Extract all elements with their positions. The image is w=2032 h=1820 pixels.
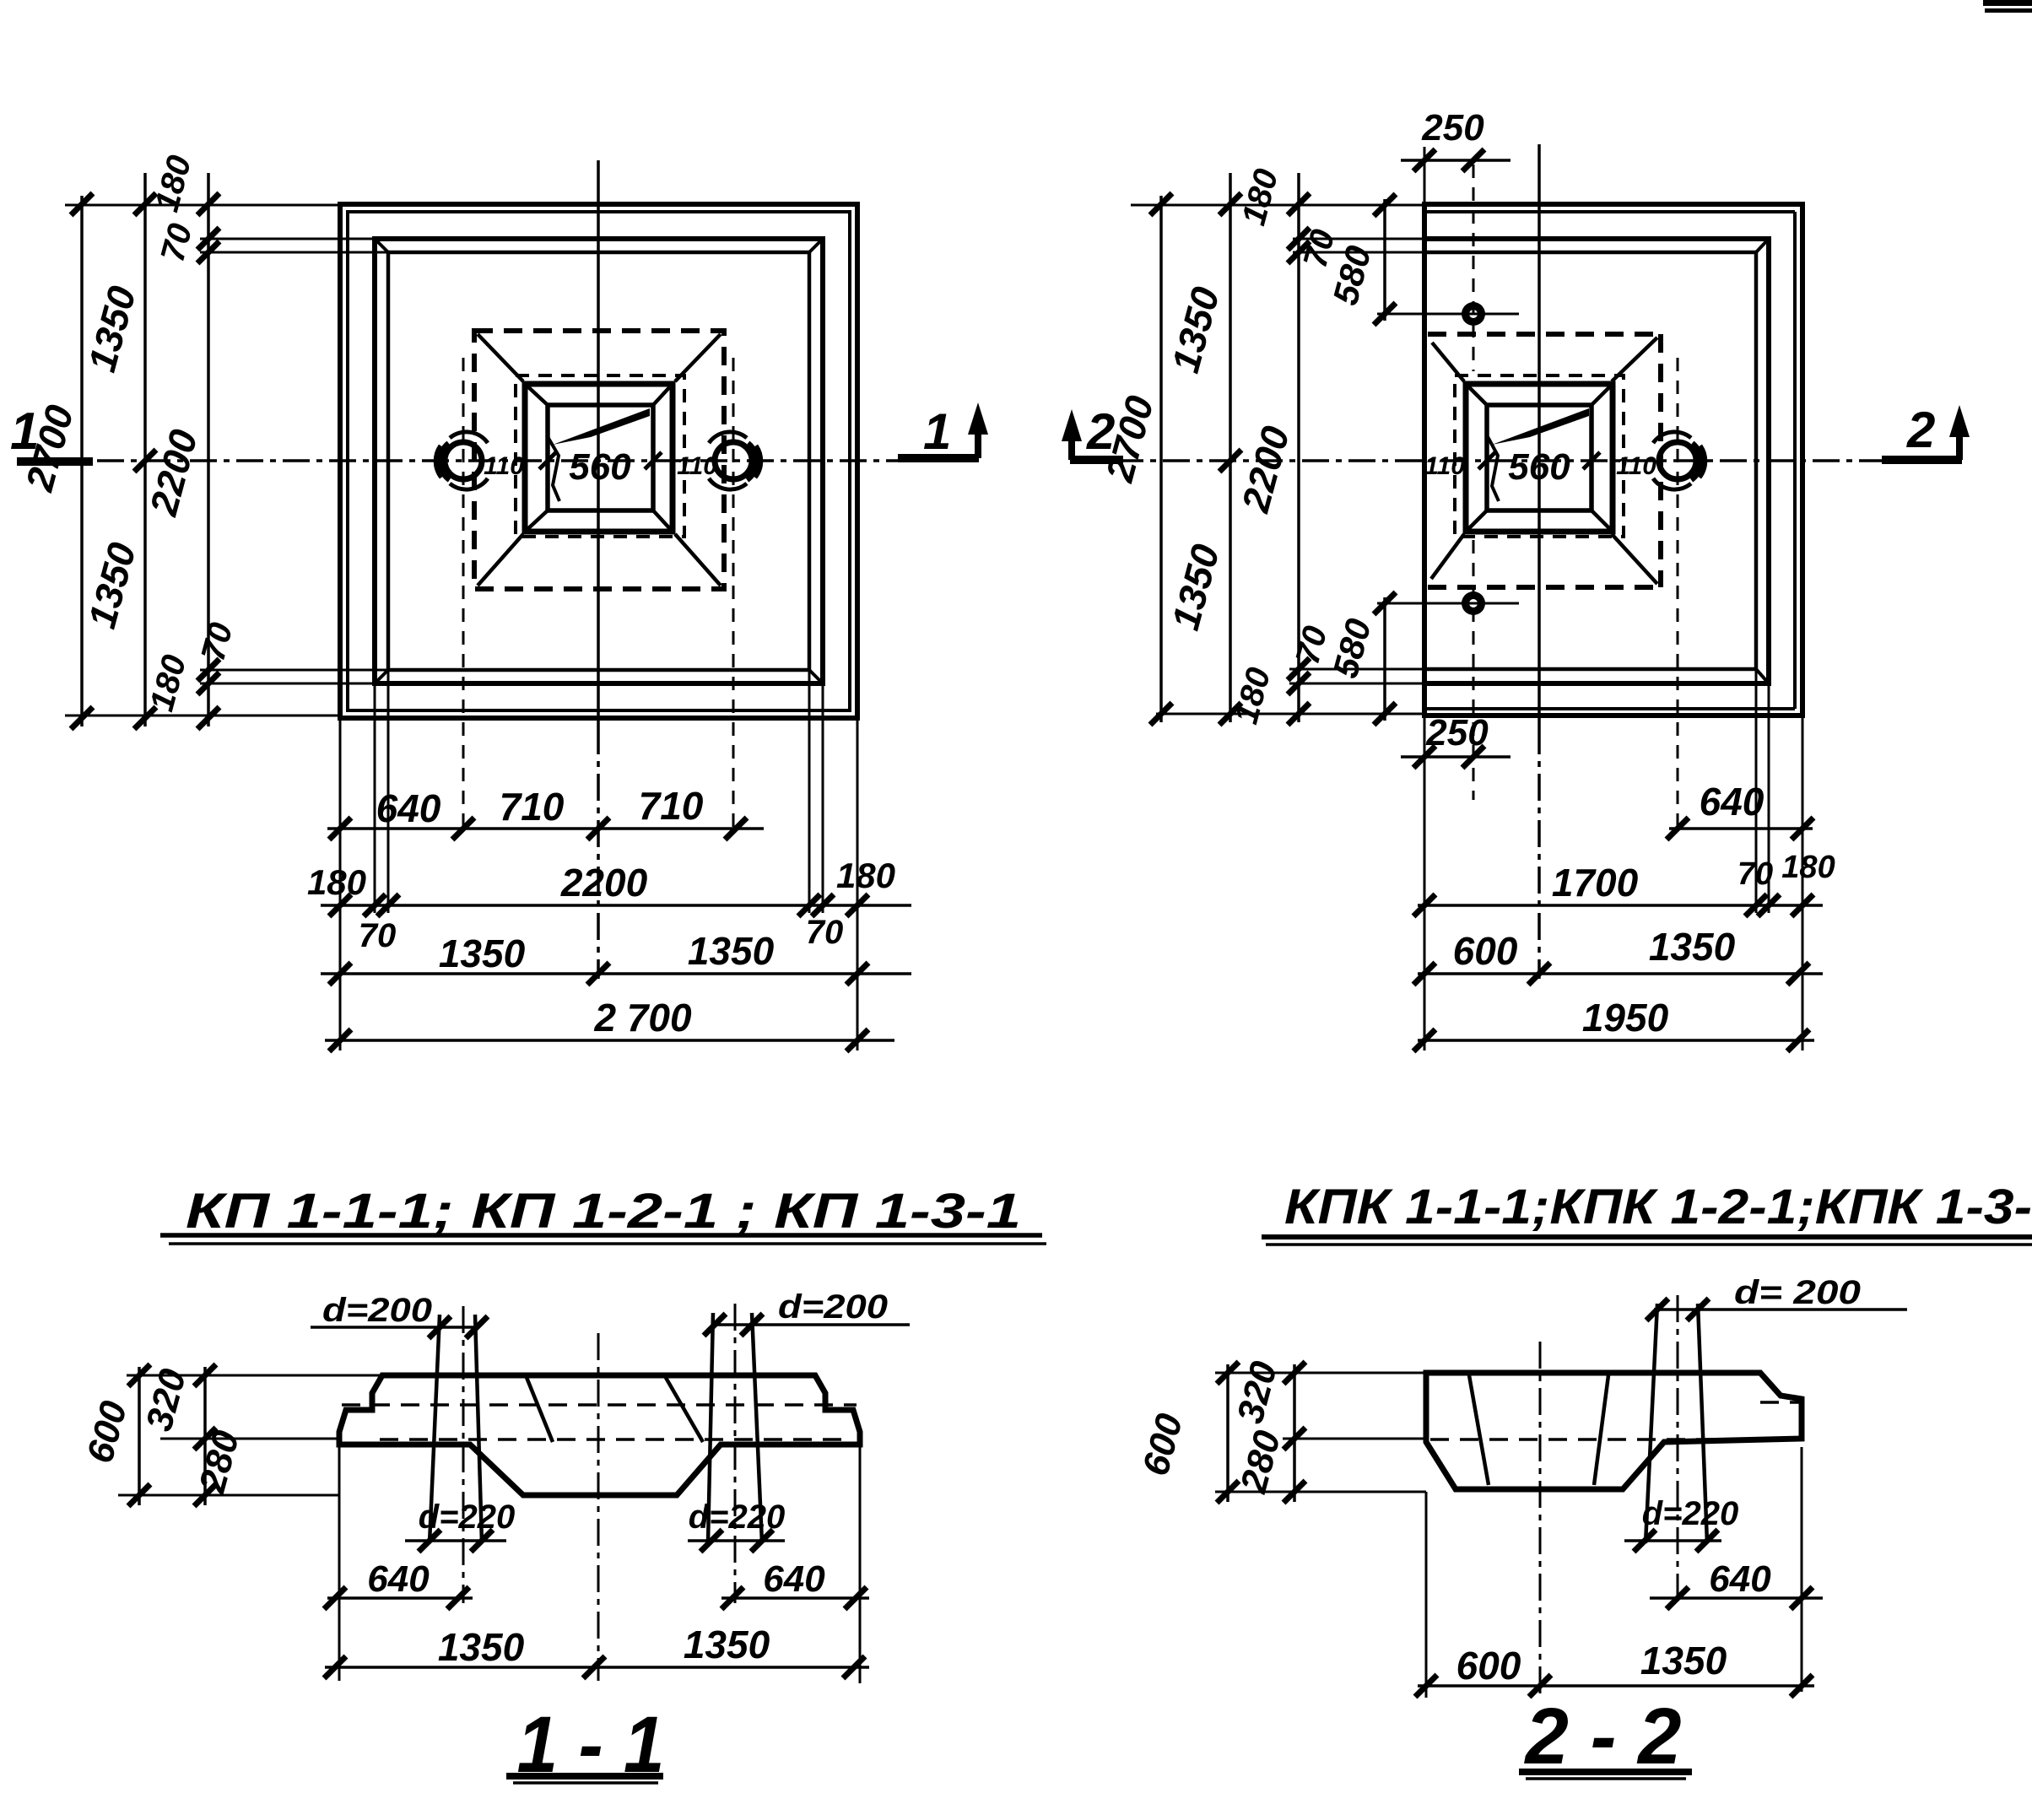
svg-text:110: 110 [484, 452, 524, 480]
svg-text:640: 640 [1700, 780, 1764, 824]
svg-text:600: 600 [1453, 929, 1518, 973]
svg-text:2: 2 [1086, 403, 1115, 460]
svg-text:560: 560 [569, 446, 631, 488]
svg-text:640: 640 [763, 1558, 825, 1600]
svg-text:710: 710 [639, 784, 704, 828]
svg-text:600: 600 [1456, 1644, 1521, 1688]
svg-text:640: 640 [376, 786, 441, 830]
svg-text:2 700: 2 700 [593, 996, 692, 1040]
svg-text:d= 200: d= 200 [1734, 1274, 1861, 1311]
svg-text:250: 250 [1421, 107, 1484, 149]
svg-text:КПК 1-1-1;КПК 1-2-1;КПК 1-3-: КПК 1-1-1;КПК 1-2-1;КПК 1-3- [1284, 1180, 2032, 1234]
svg-text:1350: 1350 [1649, 925, 1736, 969]
svg-text:1700: 1700 [1552, 861, 1639, 905]
svg-text:2200: 2200 [560, 861, 648, 905]
svg-text:180: 180 [1781, 850, 1835, 885]
svg-text:d=200: d=200 [778, 1288, 888, 1326]
svg-text:1350: 1350 [688, 929, 775, 973]
svg-text:1350: 1350 [1640, 1639, 1727, 1682]
svg-text:180: 180 [836, 856, 895, 895]
svg-text:1: 1 [923, 403, 951, 460]
svg-text:180: 180 [307, 862, 366, 902]
svg-text:250: 250 [1425, 712, 1489, 753]
svg-text:2: 2 [1906, 402, 1935, 458]
svg-text:640: 640 [1709, 1558, 1771, 1600]
svg-text:110: 110 [677, 452, 717, 480]
svg-text:70: 70 [359, 917, 397, 954]
svg-text:1350: 1350 [439, 932, 526, 975]
svg-text:110: 110 [1616, 452, 1656, 480]
svg-text:1350: 1350 [438, 1625, 525, 1669]
svg-text:d=220: d=220 [1642, 1495, 1739, 1532]
svg-text:1950: 1950 [1582, 996, 1669, 1040]
svg-text:640: 640 [367, 1558, 430, 1600]
svg-text:d=200: d=200 [322, 1292, 432, 1329]
svg-text:710: 710 [500, 785, 565, 829]
svg-text:КП 1-1-1; КП 1-2-1 ; КП 1-3-1: КП 1-1-1; КП 1-2-1 ; КП 1-3-1 [186, 1184, 1021, 1239]
svg-text:d=220: d=220 [419, 1499, 516, 1536]
svg-text:70: 70 [806, 914, 844, 951]
svg-text:1350: 1350 [684, 1623, 770, 1666]
svg-text:70: 70 [1737, 856, 1773, 892]
svg-text:110: 110 [1424, 452, 1465, 480]
svg-text:2 - 2: 2 - 2 [1524, 1692, 1682, 1781]
